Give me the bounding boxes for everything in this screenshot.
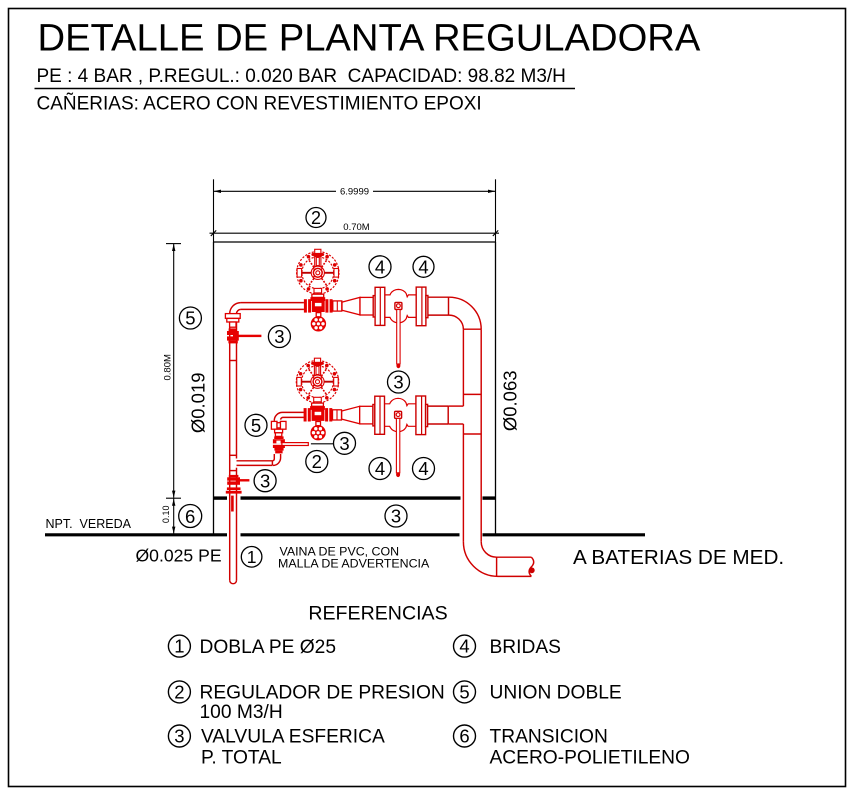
- svg-text:REFERENCIAS: REFERENCIAS: [308, 602, 447, 624]
- svg-text:2: 2: [312, 451, 322, 472]
- svg-text:MALLA DE ADVERTENCIA: MALLA DE ADVERTENCIA: [278, 556, 430, 570]
- svg-text:Ø0.019: Ø0.019: [187, 372, 208, 433]
- svg-text:3: 3: [174, 726, 184, 747]
- svg-text:3: 3: [393, 372, 403, 393]
- svg-text:6: 6: [459, 726, 469, 747]
- svg-text:2: 2: [174, 682, 184, 703]
- svg-text:PE : 4 BAR , P.REGUL.: 0.020 B: PE : 4 BAR , P.REGUL.: 0.020 BAR CAPACID…: [37, 66, 566, 87]
- svg-text:REGULADOR DE PRESION: REGULADOR DE PRESION: [200, 683, 445, 704]
- svg-text:100 M3/H: 100 M3/H: [200, 702, 283, 723]
- svg-text:4: 4: [375, 458, 385, 479]
- svg-text:6.9999: 6.9999: [340, 187, 369, 198]
- svg-text:DOBLA PE Ø25: DOBLA PE Ø25: [200, 637, 337, 658]
- svg-text:3: 3: [260, 470, 270, 491]
- svg-text:ACERO-POLIETILENO: ACERO-POLIETILENO: [490, 747, 690, 768]
- svg-text:DETALLE DE PLANTA REGULADORA: DETALLE DE PLANTA REGULADORA: [38, 17, 701, 60]
- svg-text:5: 5: [459, 682, 469, 703]
- svg-text:TRANSICION: TRANSICION: [490, 727, 608, 748]
- svg-text:3: 3: [391, 506, 401, 527]
- svg-text:1: 1: [247, 547, 257, 567]
- svg-text:4: 4: [375, 256, 385, 277]
- svg-text:A BATERIAS DE MED.: A BATERIAS DE MED.: [573, 546, 784, 569]
- svg-text:5: 5: [185, 308, 195, 329]
- svg-text:3: 3: [274, 326, 284, 347]
- svg-text:Ø0.025 PE: Ø0.025 PE: [136, 546, 222, 566]
- svg-text:6: 6: [185, 506, 195, 527]
- svg-text:3: 3: [339, 433, 349, 454]
- svg-text:CAÑERIAS: ACERO CON REVESTIMIE: CAÑERIAS: ACERO CON REVESTIMIENTO EPOXI: [37, 93, 482, 115]
- svg-text:VALVULA ESFERICA: VALVULA ESFERICA: [201, 727, 385, 748]
- svg-text:BRIDAS: BRIDAS: [490, 637, 561, 658]
- svg-text:2: 2: [311, 208, 321, 228]
- svg-text:5: 5: [251, 415, 261, 436]
- svg-text:P. TOTAL: P. TOTAL: [201, 747, 282, 768]
- svg-text:0.70M: 0.70M: [343, 222, 369, 233]
- svg-text:0.80M: 0.80M: [162, 354, 173, 380]
- svg-text:4: 4: [418, 458, 428, 479]
- svg-text:4: 4: [459, 636, 469, 657]
- svg-text:0.10: 0.10: [161, 506, 171, 524]
- svg-text:NPT. VEREDA: NPT. VEREDA: [46, 517, 132, 531]
- svg-text:Ø0.063: Ø0.063: [500, 370, 521, 431]
- svg-text:4: 4: [418, 256, 428, 277]
- svg-text:1: 1: [174, 636, 184, 657]
- svg-text:UNION DOBLE: UNION DOBLE: [490, 683, 622, 704]
